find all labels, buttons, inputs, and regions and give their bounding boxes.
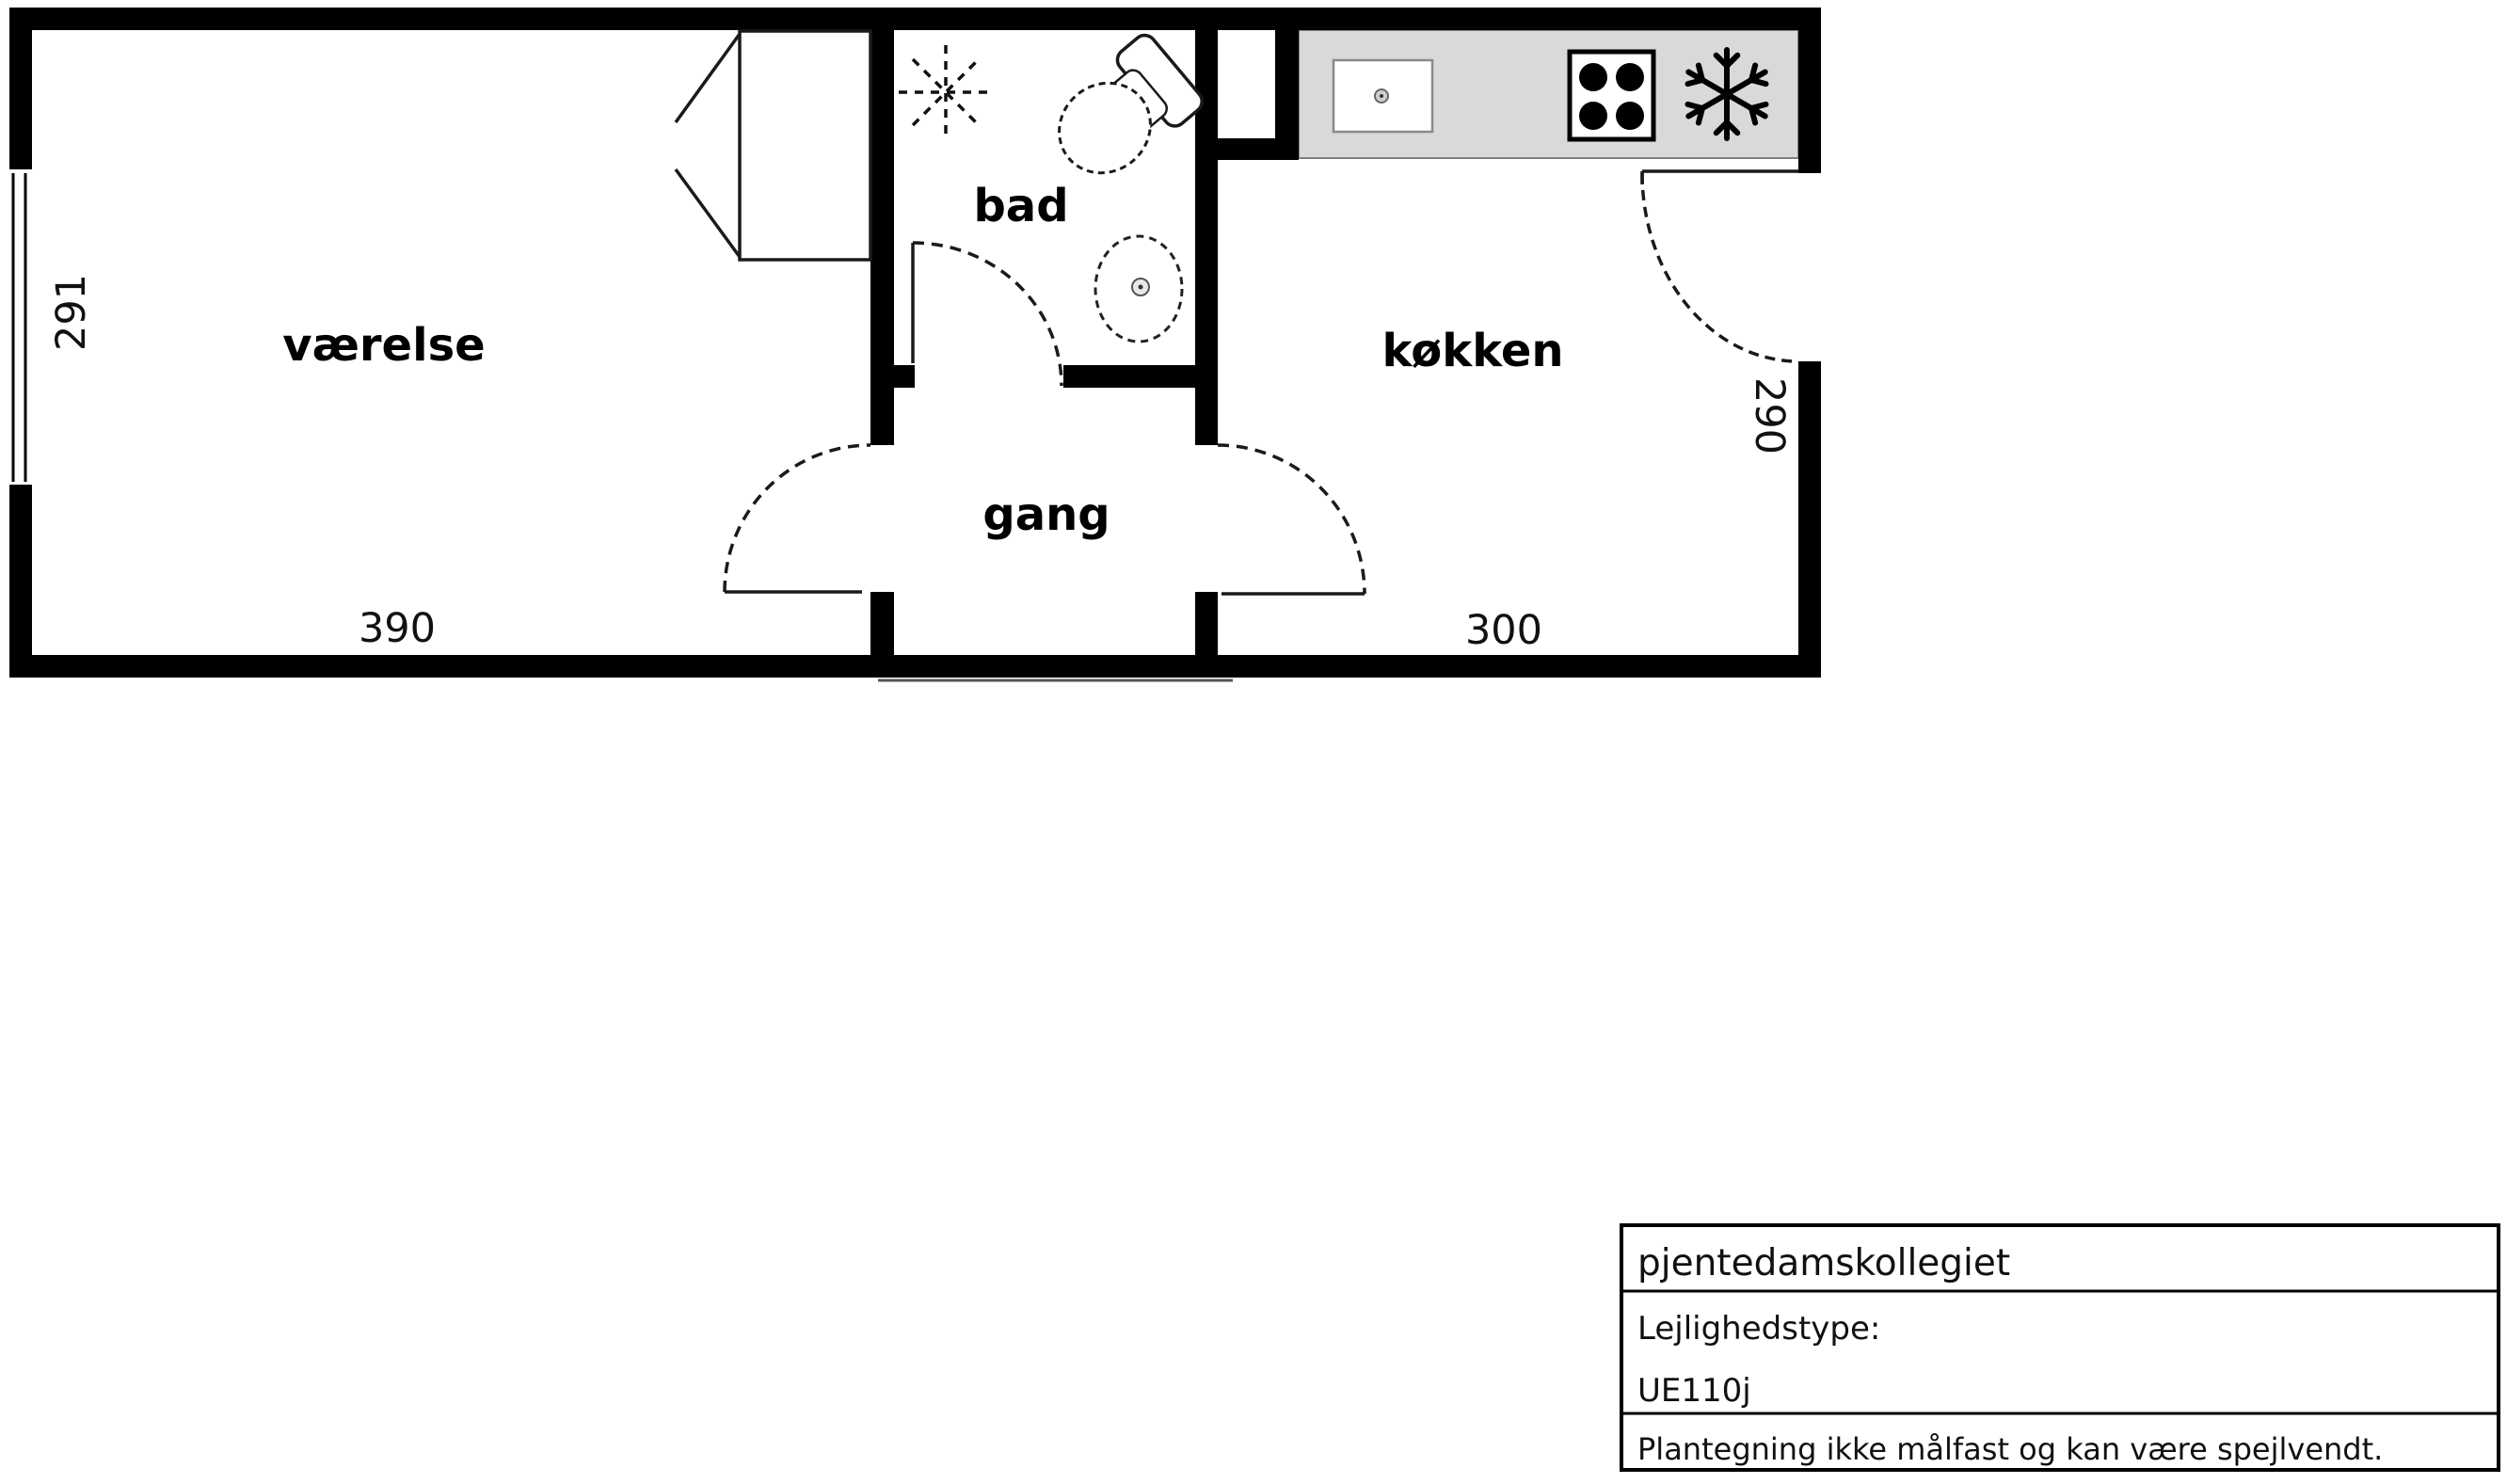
wall-bad-gang-left <box>894 365 915 388</box>
title-block: pjentedamskollegiet Lejlighedstype: UE11… <box>1621 1225 2499 1470</box>
wall-bottom <box>9 655 1821 678</box>
dim-label-right: 290 <box>1746 377 1793 455</box>
wall-right-lower <box>1798 361 1821 678</box>
room-label-vaerelse: værelse <box>282 319 485 372</box>
floor-plan-page: værelse bad gang køkken 291 390 300 290 … <box>0 0 2507 1484</box>
wall-gang-koekken-stub <box>1195 592 1218 678</box>
wall-duct-bottom <box>1195 138 1299 160</box>
stove-icon <box>1570 52 1653 139</box>
stove-burner <box>1616 63 1644 91</box>
stove-burner <box>1579 63 1607 91</box>
wall-right-upper <box>1798 8 1821 173</box>
title-block-name: pjentedamskollegiet <box>1637 1242 2010 1285</box>
stove-burner <box>1616 102 1644 130</box>
wall-vaerelse-bad <box>870 8 894 445</box>
room-label-koekken: køkken <box>1381 325 1563 377</box>
title-block-note: Plantegning ikke målfast og kan være spe… <box>1637 1431 2383 1467</box>
sink-drain-dot <box>1380 94 1383 98</box>
washbasin-drain-dot <box>1139 285 1143 290</box>
wall-vaerelse-gang-stub <box>870 592 894 678</box>
window-opening <box>8 169 34 485</box>
kitchen-sink-icon <box>1333 60 1432 132</box>
title-block-type-label: Lejlighedstype: <box>1637 1310 1880 1348</box>
washbasin-icon <box>1095 236 1182 342</box>
room-label-bad: bad <box>973 180 1068 232</box>
floor-plan-svg: værelse bad gang køkken 291 390 300 290 … <box>0 0 2507 1484</box>
title-block-type-value: UE110j <box>1637 1372 1751 1410</box>
stove-body <box>1570 52 1653 139</box>
window-icon <box>8 169 34 485</box>
dim-label-left: 291 <box>48 274 95 351</box>
wall-left-lower <box>9 485 32 678</box>
wall-left-upper <box>9 8 32 169</box>
wall-bad-gang-right <box>1063 365 1218 388</box>
dim-label-bottom-right: 300 <box>1465 607 1542 654</box>
wall-duct-right <box>1275 8 1299 143</box>
stove-burner <box>1579 102 1607 130</box>
wall-top <box>9 8 1821 30</box>
dim-label-bottom-left: 390 <box>359 605 436 652</box>
room-label-gang: gang <box>982 488 1110 541</box>
